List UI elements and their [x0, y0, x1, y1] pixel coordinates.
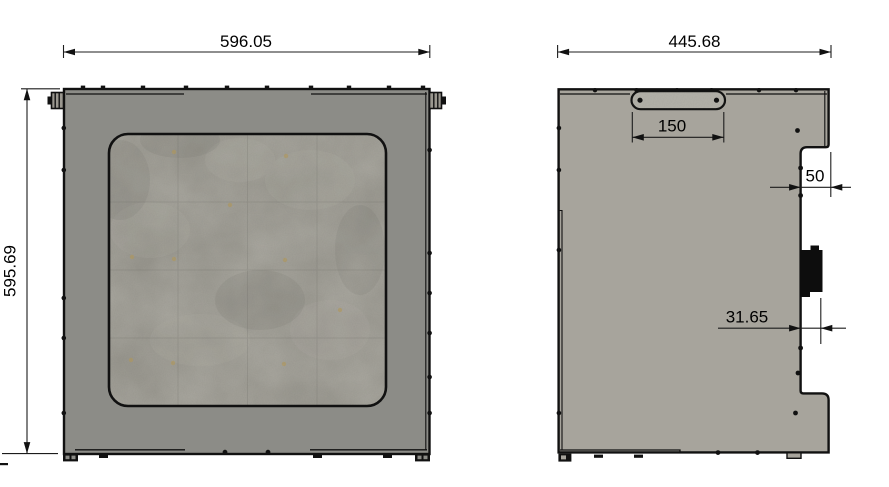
dim-step-width-label: 50: [806, 167, 825, 186]
side-left-foot: [558, 454, 571, 462]
front-view: 596.05 595.69: [0, 32, 446, 465]
side-panel-body: [559, 89, 829, 452]
dim-handle-width-label: 150: [658, 117, 686, 136]
front-left-foot: [63, 454, 78, 462]
front-window: [90, 120, 405, 420]
dim-connector-offset-label: 31.65: [726, 308, 769, 327]
front-right-foot: [415, 454, 430, 462]
cad-drawing-page: 596.05 595.69: [0, 0, 889, 487]
connector-block: [800, 246, 823, 298]
side-right-foot: [787, 453, 801, 459]
break-tick: [0, 463, 8, 465]
handle-screw-hole-right: [714, 98, 719, 103]
dim-front-width-label: 596.05: [220, 32, 272, 51]
dim-side-width-label: 445.68: [669, 32, 721, 51]
technical-drawing-canvas: 596.05 595.69: [0, 0, 889, 487]
dim-front-height-label: 595.69: [1, 245, 20, 297]
handle-screw-hole-left: [637, 98, 642, 103]
